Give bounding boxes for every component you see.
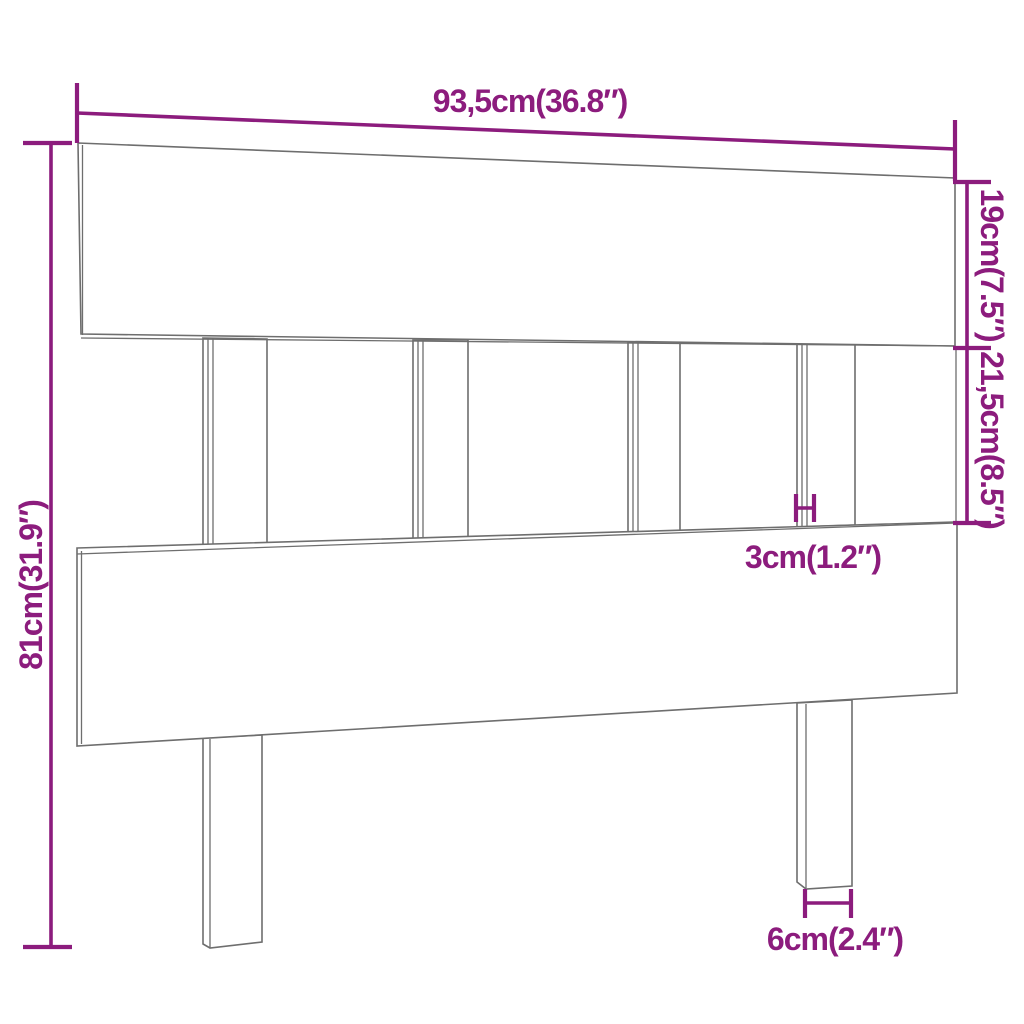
leg-width-dimension: 6cm(2.4″) <box>767 889 904 957</box>
top-board-face <box>78 143 955 346</box>
slat-4-face <box>797 344 855 527</box>
slat-2-face <box>413 340 468 541</box>
slat-3 <box>628 342 680 533</box>
slat-3-face <box>628 342 680 533</box>
leg-width-label: 6cm(2.4″) <box>767 921 904 957</box>
left-leg-face <box>203 735 262 948</box>
middle-section-height-label: 21,5cm(8.5″) <box>974 351 1010 529</box>
total-height-dimension-label: 81cm(31.9″) <box>13 500 49 670</box>
diagram-canvas: 93,5cm(36.8″) 81cm(31.9″) 19cm(7.5″) 2 <box>0 0 1024 1024</box>
headboard-legs <box>203 700 852 948</box>
slat-4 <box>797 344 855 527</box>
right-leg <box>797 700 852 889</box>
top-board <box>78 143 955 346</box>
right-leg-face <box>797 700 852 889</box>
top-board-height-label: 19cm(7.5″) <box>974 189 1010 342</box>
top-board-height-dimension: 19cm(7.5″) <box>953 182 1010 348</box>
slat-1 <box>203 338 267 548</box>
left-leg <box>203 735 262 948</box>
headboard-slats <box>203 338 956 548</box>
width-dimension-label: 93,5cm(36.8″) <box>433 83 628 119</box>
headboard-dimension-diagram: 93,5cm(36.8″) 81cm(31.9″) 19cm(7.5″) 2 <box>0 0 1024 1024</box>
middle-section-height-dimension: 21,5cm(8.5″) <box>953 348 1010 529</box>
total-height-dimension: 81cm(31.9″) <box>13 143 72 947</box>
slat-thickness-label: 3cm(1.2″) <box>745 539 882 575</box>
slat-2 <box>413 340 468 541</box>
